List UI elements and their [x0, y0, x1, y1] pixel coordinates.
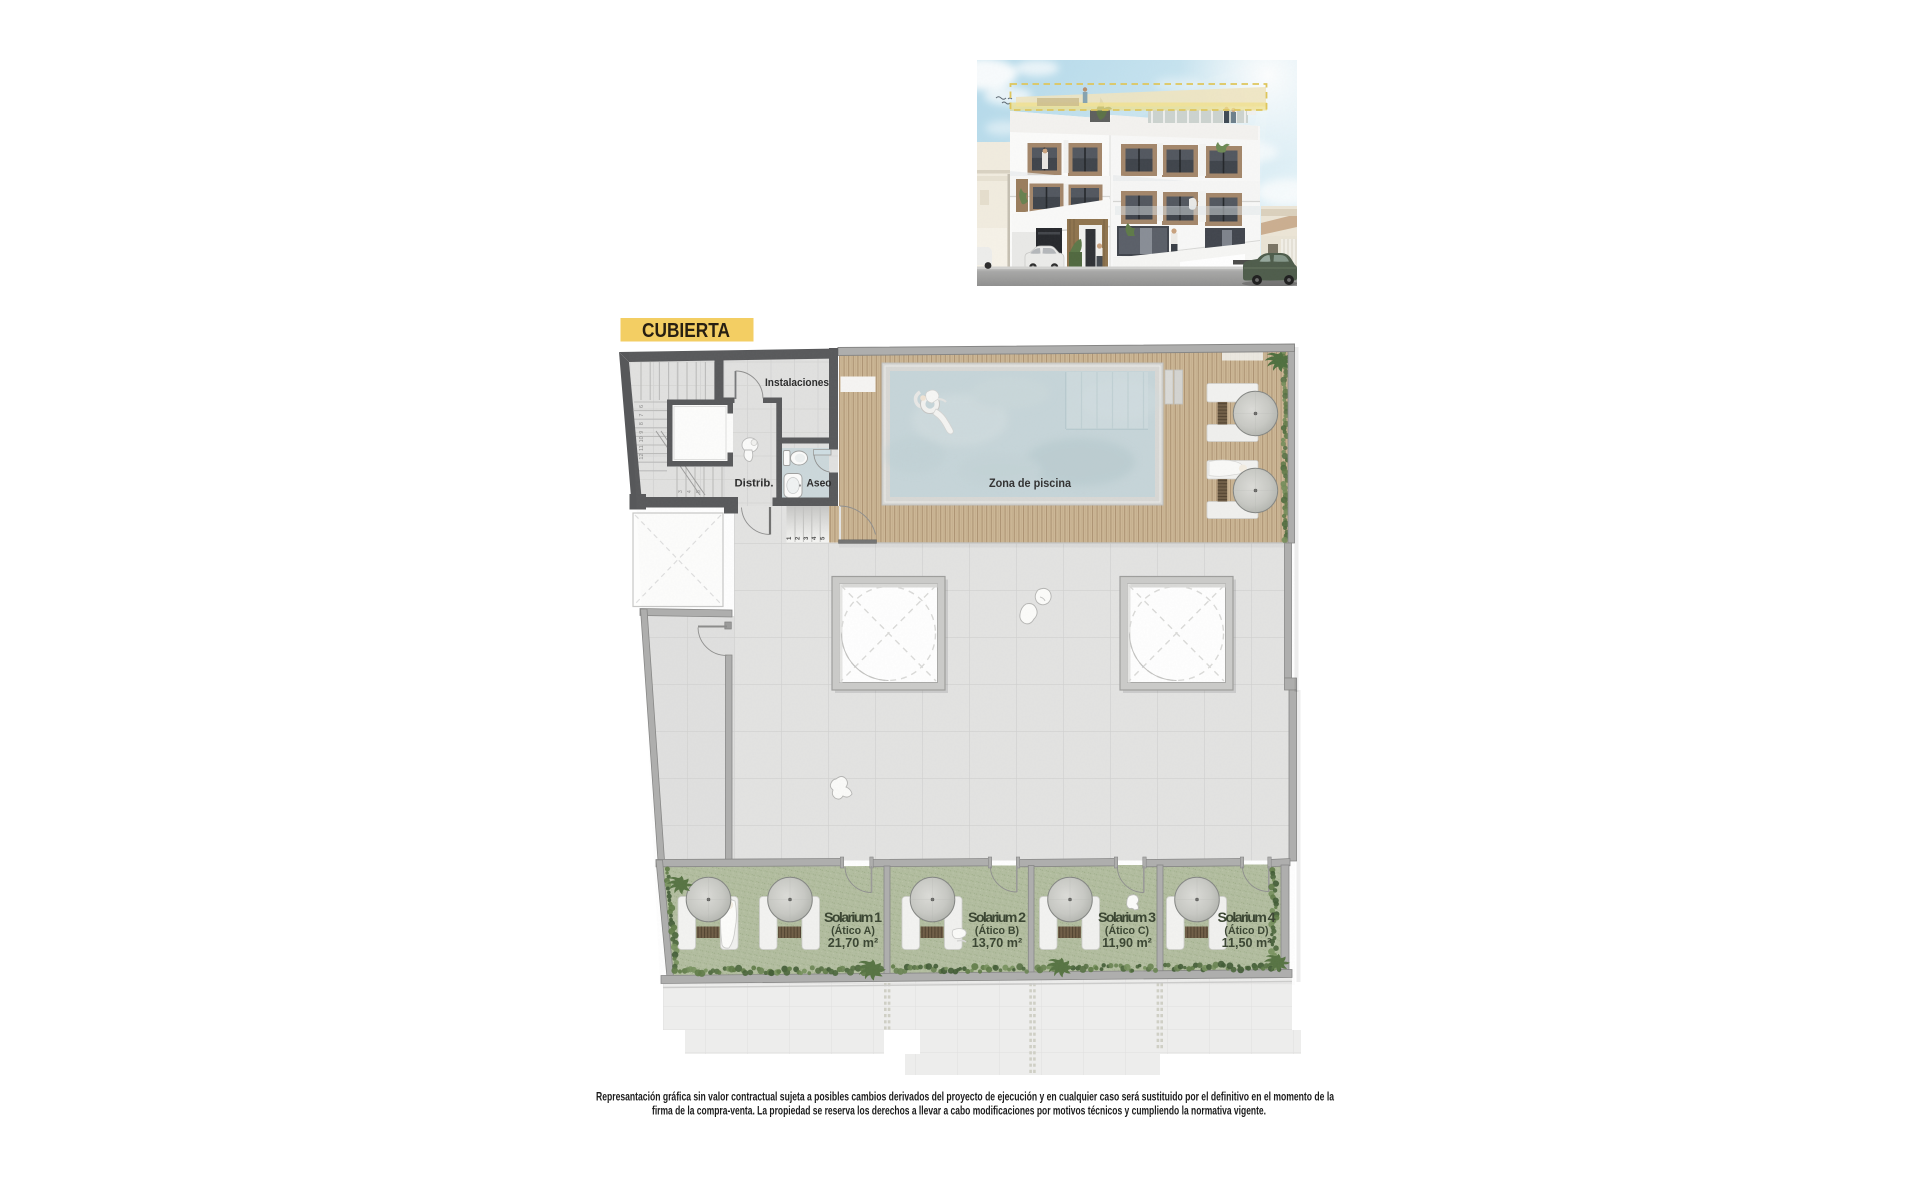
svg-text:Distrib.: Distrib. — [735, 478, 774, 490]
svg-text:13,70 m²: 13,70 m² — [972, 936, 1022, 950]
svg-text:11,90 m²: 11,90 m² — [1102, 936, 1152, 950]
svg-text:Instalaciones: Instalaciones — [765, 377, 829, 389]
svg-text:Solarium 1: Solarium 1 — [824, 910, 882, 926]
svg-text:21,70 m²: 21,70 m² — [828, 936, 878, 950]
svg-text:11,50 m²: 11,50 m² — [1222, 936, 1272, 950]
svg-text:firma de la compra-venta. La p: firma de la compra-venta. La propiedad s… — [652, 1104, 1266, 1118]
svg-text:Solarium 4: Solarium 4 — [1218, 910, 1276, 926]
svg-text:Aseo: Aseo — [807, 478, 832, 490]
svg-text:CUBIERTA: CUBIERTA — [642, 319, 730, 342]
svg-text:Solarium 2: Solarium 2 — [968, 910, 1026, 926]
svg-text:Represantación gráfica sin val: Represantación gráfica sin valor contrac… — [596, 1090, 1334, 1104]
svg-text:Solarium 3: Solarium 3 — [1098, 910, 1156, 926]
